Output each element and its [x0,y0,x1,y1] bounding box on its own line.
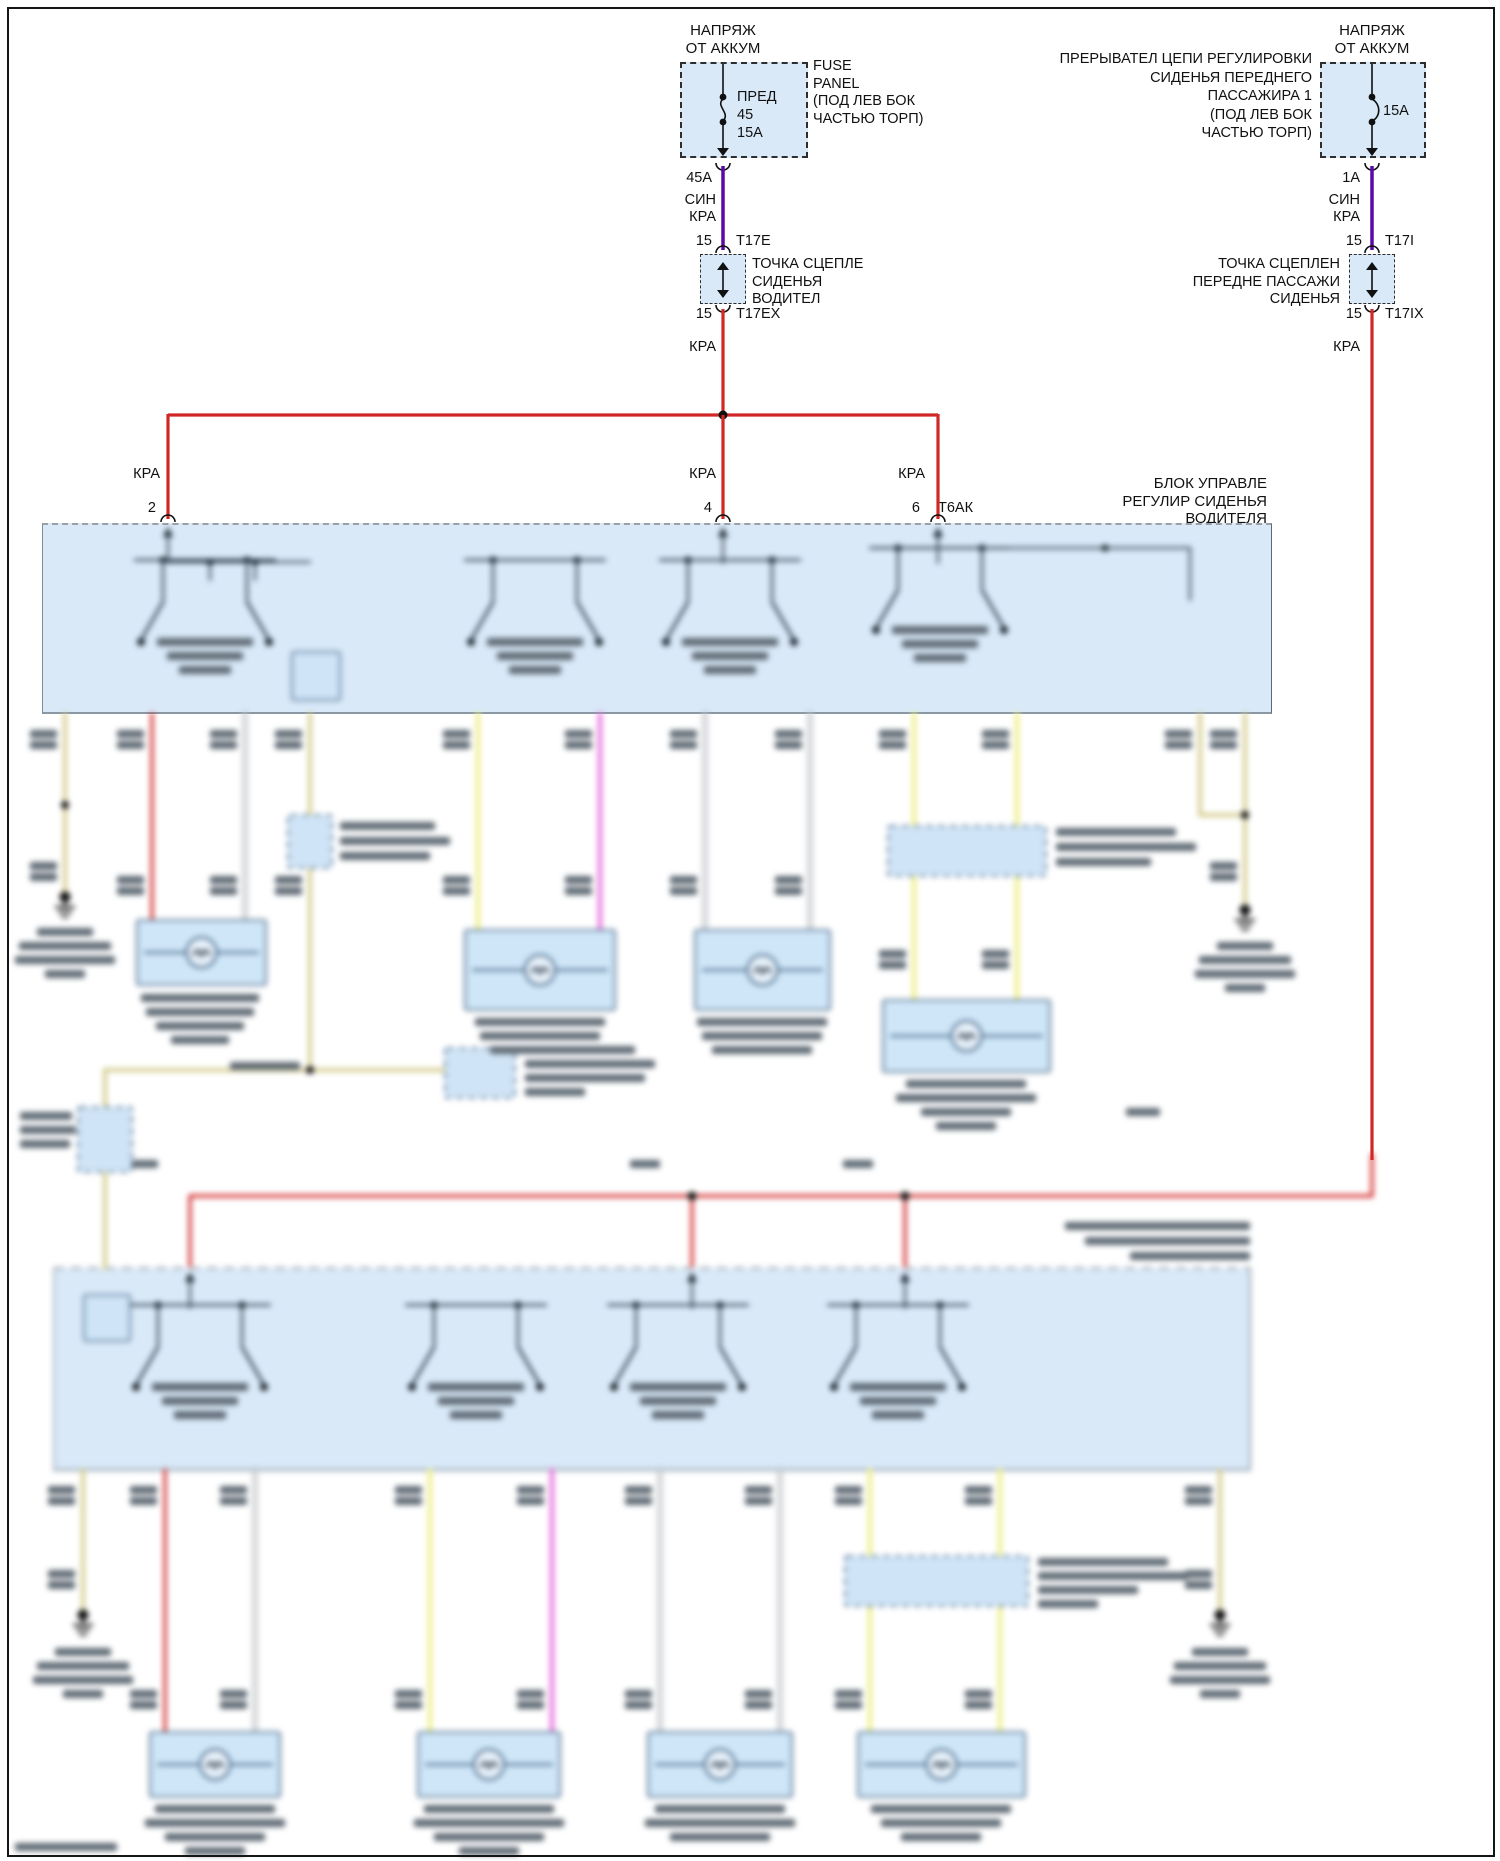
wiring-diagram-page: НАПРЯЖОТ АККУМ НАПРЯЖОТ АККУМ ПРЕД 45 15… [0,0,1500,1861]
label-line: ОТ АККУМ [648,40,798,58]
battery-feed-header-right: НАПРЯЖОТ АККУМ [1297,22,1447,57]
label-line: ОТ АККУМ [1297,40,1447,58]
label-line: НАПРЯЖ [648,22,798,40]
battery-feed-header-left: НАПРЯЖОТ АККУМ [648,22,798,57]
label-line: НАПРЯЖ [1297,22,1447,40]
